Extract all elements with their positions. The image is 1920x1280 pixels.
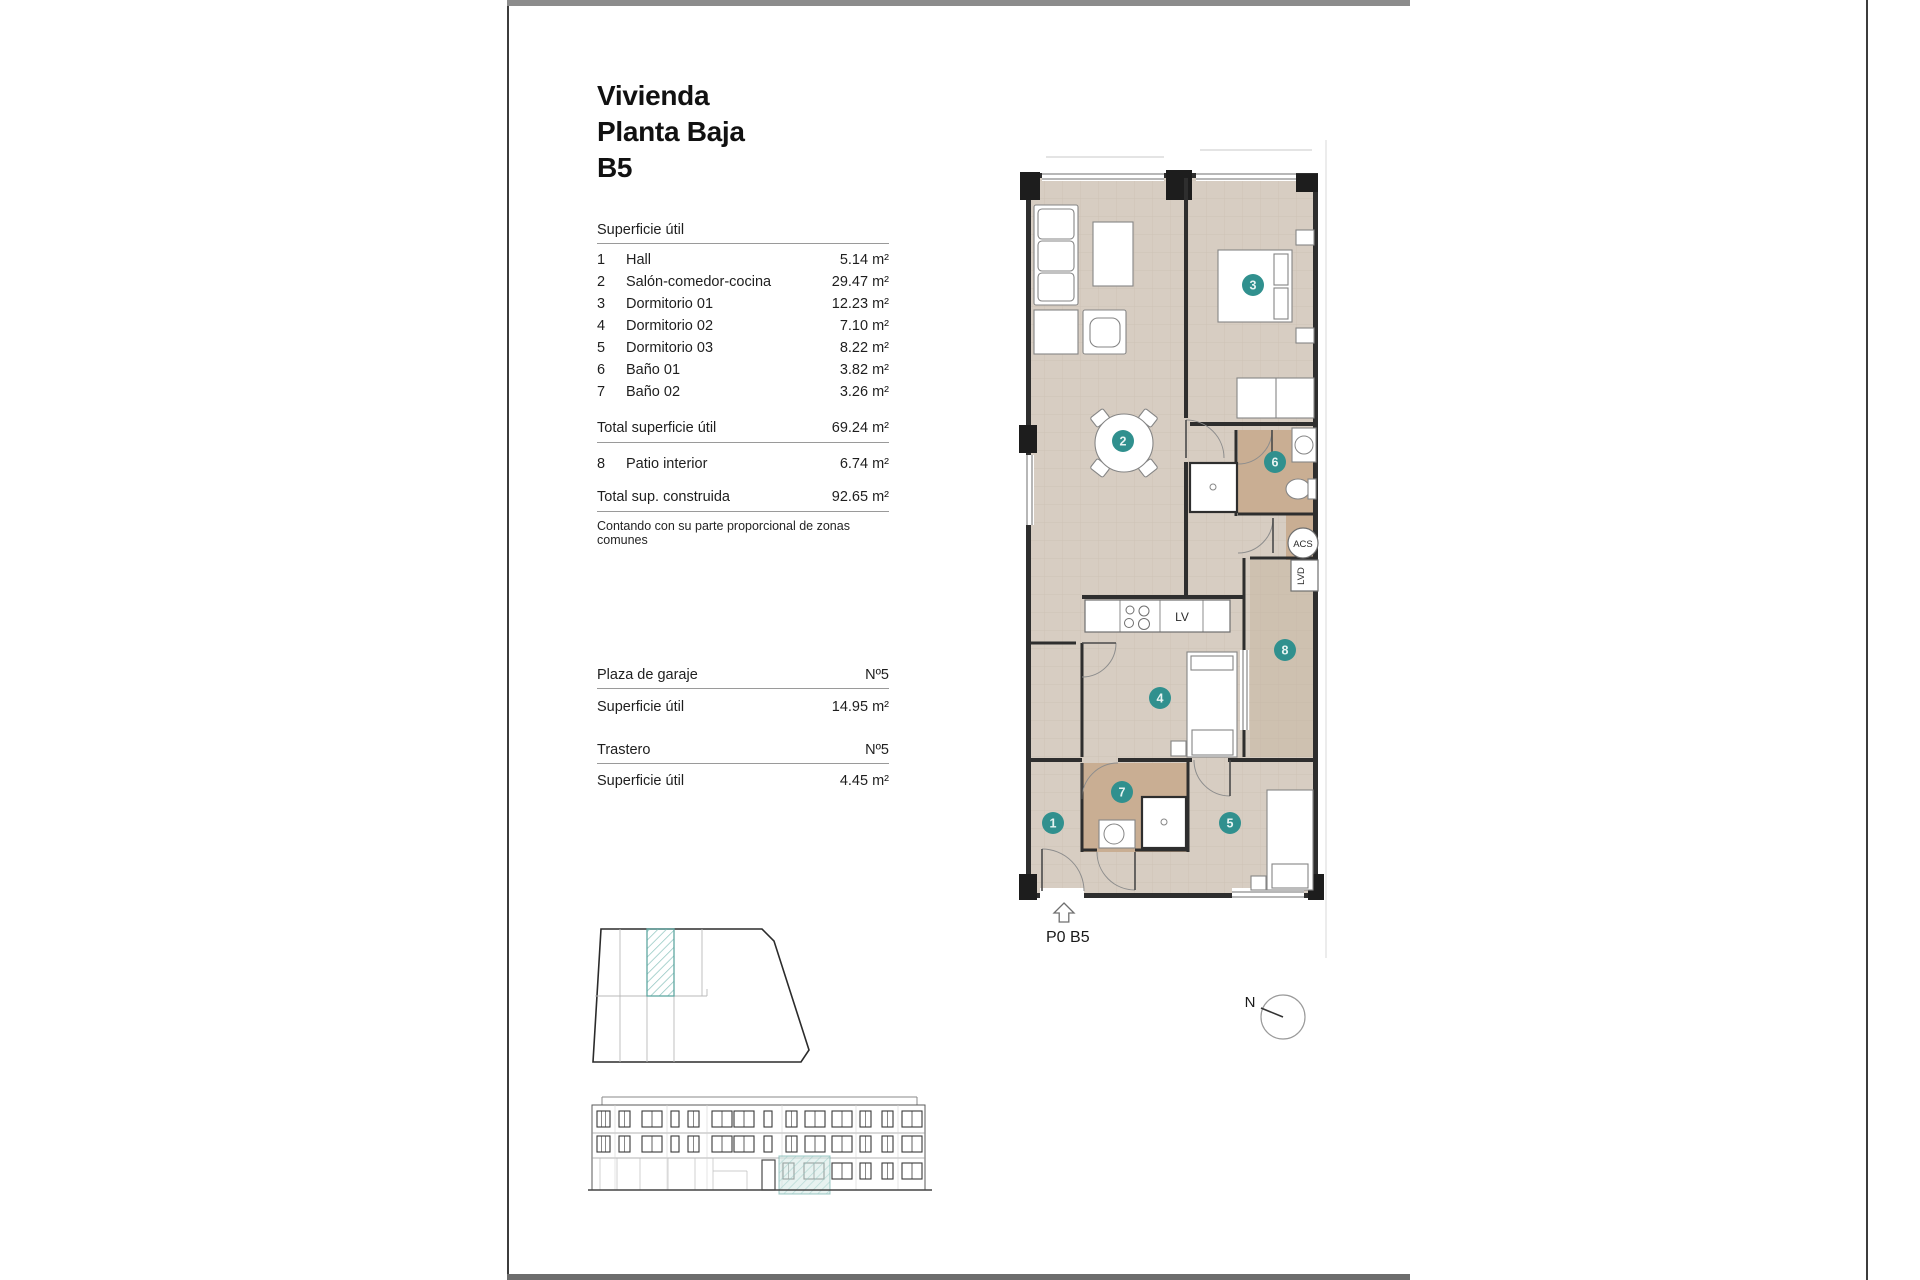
room-badge: 2: [1112, 430, 1134, 452]
floor-plan: ACS LVD LV: [1019, 140, 1326, 958]
site-outline: [593, 929, 809, 1062]
svg-text:4: 4: [1157, 692, 1164, 706]
room-badge: 5: [1219, 812, 1241, 834]
room-badge: 1: [1042, 812, 1064, 834]
entrance-door: [762, 1160, 775, 1190]
north-label: N: [1245, 994, 1256, 1011]
room-badge: 4: [1149, 687, 1171, 709]
svg-text:1: 1: [1050, 817, 1057, 831]
room-badge: 3: [1242, 274, 1264, 296]
kitchen-counter: LV: [1085, 600, 1230, 632]
svg-text:8: 8: [1282, 644, 1289, 658]
acs-label: ACS: [1293, 539, 1313, 550]
utility-items: ACS LVD: [1288, 528, 1318, 591]
patio-glazing: [1240, 650, 1249, 730]
svg-text:5: 5: [1227, 817, 1234, 831]
building-elevation: [588, 1097, 932, 1194]
highlighted-elevation-unit: [779, 1156, 830, 1194]
compass-needle: [1261, 1008, 1283, 1017]
lvd-label: LVD: [1296, 567, 1307, 585]
highlighted-unit: [647, 929, 674, 996]
svg-text:7: 7: [1119, 786, 1126, 800]
site-plan: [593, 929, 809, 1062]
drawings-svg: ACS LVD LV: [0, 0, 1920, 1280]
room-badge: 8: [1274, 639, 1296, 661]
room-badge: 7: [1111, 781, 1133, 803]
window: [1196, 170, 1296, 181]
svg-text:3: 3: [1250, 279, 1257, 293]
north-compass: N: [1245, 994, 1305, 1039]
svg-text:6: 6: [1272, 456, 1279, 470]
plan-sheet: Vivienda Planta Baja B5 Superficie útil …: [0, 0, 1920, 1280]
plan-unit-label: P0 B5: [1046, 929, 1090, 946]
entrance-opening: [1040, 888, 1084, 899]
window: [1023, 455, 1034, 525]
dishwasher-label: LV: [1175, 610, 1189, 624]
room-badge: 6: [1264, 451, 1286, 473]
svg-text:2: 2: [1120, 435, 1127, 449]
entrance-arrow-icon: [1054, 903, 1074, 922]
window: [1042, 170, 1164, 181]
